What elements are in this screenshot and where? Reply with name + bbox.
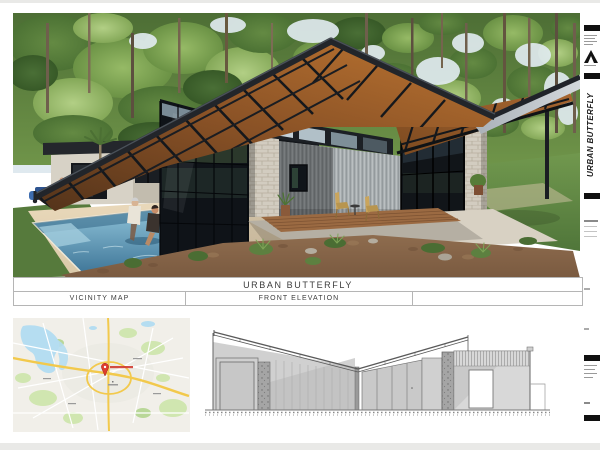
titleblock-revisions-label bbox=[584, 220, 598, 222]
sheet-title-band: URBAN BUTTERFLY bbox=[13, 277, 583, 292]
sheet-title: URBAN BUTTERFLY bbox=[243, 280, 353, 290]
titleblock-fine-print bbox=[584, 377, 593, 378]
titleblock-divider-bar bbox=[584, 415, 600, 421]
elevation-ground-line bbox=[205, 410, 550, 415]
label-cell-empty bbox=[412, 291, 583, 306]
titleblock-mark bbox=[584, 288, 590, 290]
roof-post bbox=[545, 99, 549, 199]
titleblock-revision-line bbox=[584, 226, 597, 227]
label-cell-front-elevation: FRONT ELEVATION bbox=[185, 291, 413, 306]
render-image bbox=[13, 13, 580, 278]
titleblock-fine-print bbox=[584, 44, 593, 45]
titleblock-mark bbox=[584, 402, 590, 404]
titleblock-fine-print bbox=[584, 38, 595, 39]
label-cell-vicinity-map: VICINITY MAP bbox=[13, 291, 186, 306]
elevation-left-block bbox=[213, 333, 357, 410]
titleblock-fine-print bbox=[584, 41, 597, 42]
vicinity-map-image bbox=[13, 318, 190, 432]
titleblock-fine-print bbox=[584, 35, 597, 36]
page-edge-top bbox=[0, 0, 600, 3]
titleblock-mark bbox=[584, 328, 589, 330]
titleblock-divider-bar bbox=[584, 25, 600, 31]
vicinity-map-label: VICINITY MAP bbox=[70, 295, 130, 302]
titleblock-vertical-title: URBAN BUTTERFLY bbox=[583, 91, 598, 177]
elevation-glass-doors bbox=[362, 360, 422, 410]
architect-logo-icon bbox=[584, 50, 598, 63]
elevation-wall-panel bbox=[422, 358, 442, 410]
titleblock-divider-bar bbox=[584, 193, 600, 199]
titleblock-fine-print bbox=[584, 373, 597, 374]
elevation-stone-pier bbox=[442, 352, 454, 410]
titleblock-fine-print bbox=[584, 369, 595, 370]
titleblock-revision-line bbox=[584, 236, 597, 237]
front-elevation-drawing bbox=[200, 322, 560, 428]
elevation-valley-post bbox=[355, 367, 359, 410]
page-edge-bottom bbox=[0, 443, 600, 450]
titleblock-fine-print bbox=[584, 65, 596, 66]
elevation-right-block bbox=[454, 347, 545, 410]
titleblock-sidebar: URBAN BUTTERFLY bbox=[581, 3, 600, 443]
titleblock-revision-line bbox=[584, 231, 597, 232]
titleblock-fine-print bbox=[584, 365, 597, 366]
titleblock-divider-bar bbox=[584, 73, 600, 79]
architectural-sheet: { "sheet": { "title_band": "URBAN BUTTER… bbox=[0, 0, 600, 450]
titleblock-divider-bar bbox=[584, 355, 600, 361]
map-site-label bbox=[110, 366, 133, 368]
front-elevation-label: FRONT ELEVATION bbox=[259, 295, 340, 302]
